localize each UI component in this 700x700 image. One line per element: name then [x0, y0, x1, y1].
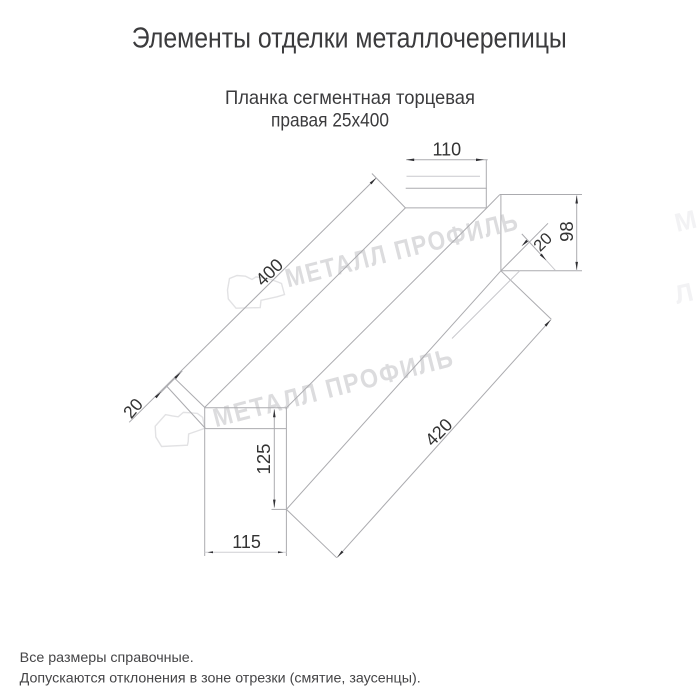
svg-text:Допускаются отклонения в зоне: Допускаются отклонения в зоне отрезки (с…: [20, 670, 421, 686]
svg-text:Все размеры справочные.: Все размеры справочные.: [20, 649, 194, 665]
svg-text:110: 110: [432, 140, 461, 160]
svg-text:правая 25х400: правая 25х400: [271, 109, 389, 131]
svg-text:98: 98: [556, 221, 577, 242]
svg-text:Планка сегментная торцевая: Планка сегментная торцевая: [225, 87, 475, 109]
svg-text:Элементы отделки металлочерепи: Элементы отделки металлочерепицы: [132, 22, 567, 54]
svg-text:115: 115: [232, 532, 261, 552]
svg-text:125: 125: [253, 444, 274, 475]
